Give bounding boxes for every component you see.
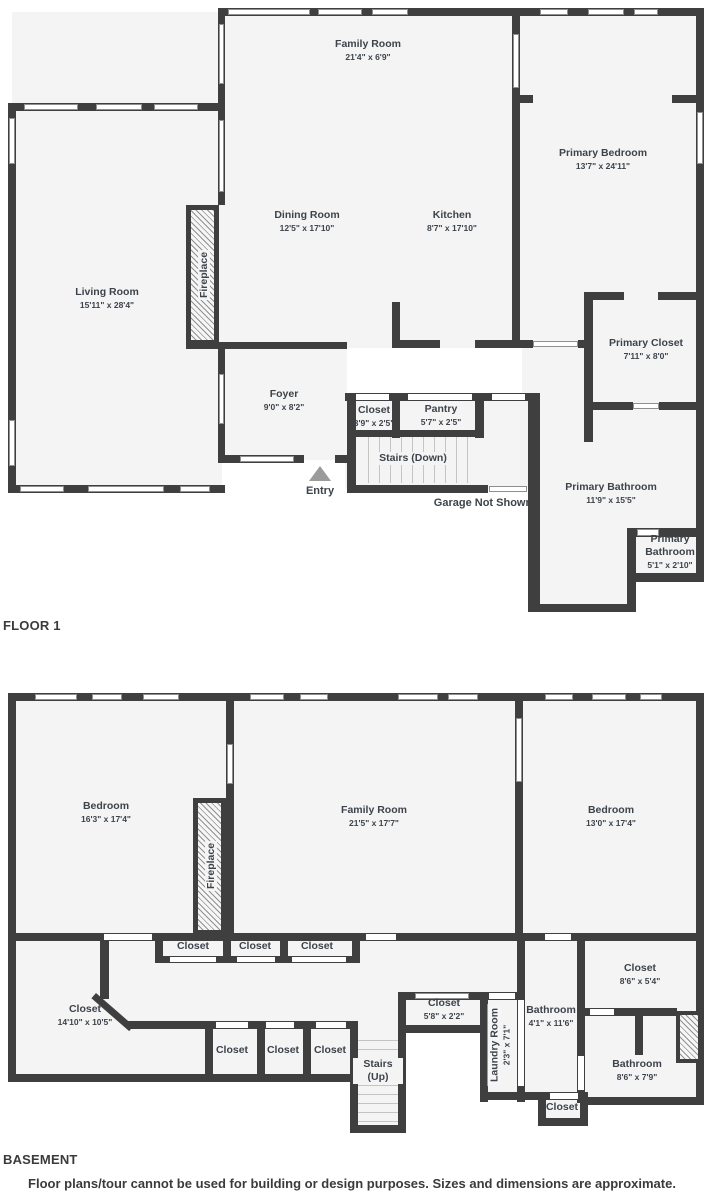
room-label-closet: Closet3'9" x 2'5" [354,404,394,429]
window [640,694,662,700]
wall [635,1008,643,1055]
door-opening [408,394,472,400]
window [592,694,626,700]
wall [347,485,488,493]
section-label-basement: BASEMENT [3,1152,78,1167]
room-label-primary-closet: Primary Closet7'11" x 8'0" [609,337,683,362]
room-label-closet: Closet5'8" x 2'2" [424,997,464,1022]
window [9,118,15,164]
room-label-laundry: Laundry Room2'3" x 7'1" [488,1004,513,1086]
room-label-closet: Closet [314,1044,346,1057]
room-label-primary-bathroom: Primary Bathroom11'9" x 15'5" [565,481,657,506]
room-label-kitchen: Kitchen8'7" x 17'10" [427,209,477,234]
window [35,694,77,700]
window [9,420,15,466]
room-label-pantry: Pantry5'7" x 2'5" [421,403,461,428]
window [398,694,438,700]
window [250,694,284,700]
wall [226,693,234,935]
disclaimer-text: Floor plans/tour cannot be used for buil… [0,1176,704,1191]
wall [475,340,533,348]
wall [128,1021,212,1029]
door-opening [266,1022,294,1028]
wall [100,941,109,999]
window [516,718,522,782]
room-label-foyer: Foyer9'0" x 8'2" [264,388,304,413]
door-opening [170,957,216,962]
room-label-closet: Closet [267,1044,299,1057]
door-opening [489,993,515,999]
wall [8,693,16,1082]
room-label-closet: Closet [216,1044,248,1057]
room-label-bedroom-right: Bedroom13'0" x 17'4" [586,804,636,829]
entry-label: Entry [306,485,334,497]
window [448,694,478,700]
room-area [483,400,528,487]
room-label-bedroom-left: Bedroom16'3" x 17'4" [81,800,131,825]
room-area [540,395,700,538]
room-label-bathroom: Bathroom8'6" x 7'9" [612,1058,662,1083]
window [633,403,659,409]
window [634,9,658,15]
door-opening [216,1022,248,1028]
wall [517,95,533,103]
room-label-closet: Closet [239,940,271,953]
fireplace-label: Fireplace [194,250,212,300]
door-opening [550,1093,578,1099]
wall [584,410,593,442]
window [88,486,164,492]
garage-note: Garage Not Shown [434,497,532,509]
window [219,24,224,84]
door-opening [518,1000,524,1086]
wall [347,430,480,437]
floor-plan-image: Family Room21'4" x 6'9" Dining Room12'5"… [0,0,704,1193]
window [219,374,224,424]
wall [528,604,636,612]
window [240,456,294,462]
window [540,9,568,15]
wall [538,1118,588,1126]
door-opening [590,1009,614,1015]
window [513,34,519,88]
wall [580,1097,704,1105]
window [180,486,210,492]
wall [658,292,704,300]
room-label-living-room: Living Room15'11" x 28'4" [75,286,139,311]
door-opening [104,934,152,940]
window [96,104,142,110]
window [545,694,573,700]
window [143,694,179,700]
door-opening [237,957,275,962]
wall [8,1074,358,1082]
window [24,104,78,110]
door-opening [353,394,389,400]
wall [480,1092,546,1100]
door-opening [292,957,346,962]
wall [627,573,636,612]
wall [672,95,704,103]
door-opening [545,934,571,940]
door-opening [578,1056,584,1090]
wall [350,1125,406,1133]
garage-door-opening [489,486,527,492]
room-label-closet: Closet [301,940,333,953]
room-label-family-room: Family Room21'4" x 6'9" [335,38,401,63]
wall [186,342,347,349]
window [219,120,224,192]
wall [392,340,440,348]
entry-arrow-icon [309,466,331,481]
window [228,9,310,15]
wall [627,573,704,582]
window [318,9,362,15]
room-label-family-room: Family Room21'5" x 17'7" [341,804,407,829]
room-label-primary-bedroom: Primary Bedroom13'7" x 24'11" [559,147,647,172]
fireplace-label: Fireplace [201,841,219,891]
room-label-bathroom: Bathroom4'1" x 11'6" [526,1004,576,1029]
room-label-closet: Closet [546,1101,578,1114]
window [300,694,328,700]
window [533,341,578,347]
window [372,9,408,15]
room-label-closet: Closet8'6" x 5'4" [620,962,660,987]
wall [335,455,347,463]
wall [659,402,704,410]
window [227,744,233,784]
section-label-floor1: FLOOR 1 [3,618,61,633]
door-opening [316,1022,346,1028]
room-area [540,538,636,610]
wall [205,1021,213,1082]
shower-hatch [676,1011,702,1063]
room-label-dining-room: Dining Room12'5" x 17'10" [274,209,339,234]
window [697,112,703,164]
window [588,9,624,15]
door-opening [492,394,525,400]
wall [398,1025,488,1033]
door-opening [366,934,396,940]
window [20,486,64,492]
room-area [480,1009,700,1098]
room-label-stairs-down: Stairs (Down) [376,452,450,465]
wall [593,402,633,410]
room-label-primary-bathroom-small: Primary Bathroom5'1" x 2'10" [638,533,702,571]
window [92,694,122,700]
wall [584,292,593,410]
room-label-closet-large: Closet14'10" x 10'5" [58,1003,113,1028]
window [154,104,198,110]
room-label-stairs-up: Stairs (Up) [353,1058,403,1084]
room-label-closet: Closet [177,940,209,953]
